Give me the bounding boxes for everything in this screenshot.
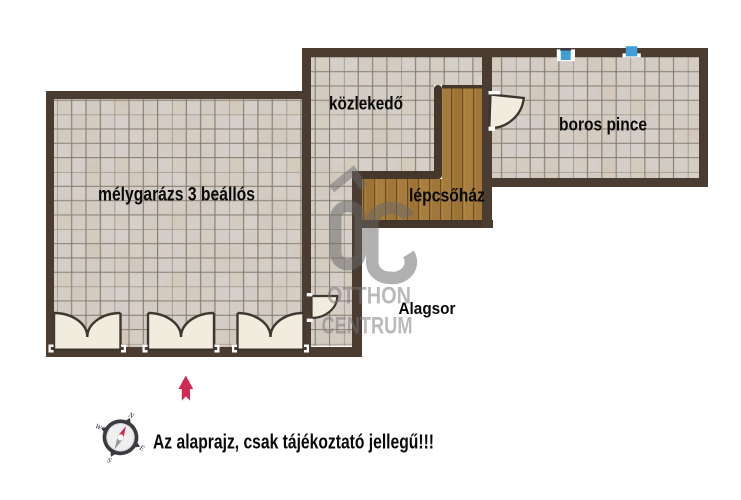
svg-text:mélygarázs 3 beállós: mélygarázs 3 beállós [98, 185, 255, 206]
svg-text:Az alaprajz, csak tájékoztató: Az alaprajz, csak tájékoztató jellegű!!! [153, 432, 434, 454]
svg-text:közlekedő: közlekedő [329, 94, 403, 114]
svg-text:lépcsőház: lépcsőház [409, 186, 485, 206]
svg-text:Alagsor: Alagsor [399, 300, 457, 318]
svg-text:boros pince: boros pince [559, 115, 647, 135]
